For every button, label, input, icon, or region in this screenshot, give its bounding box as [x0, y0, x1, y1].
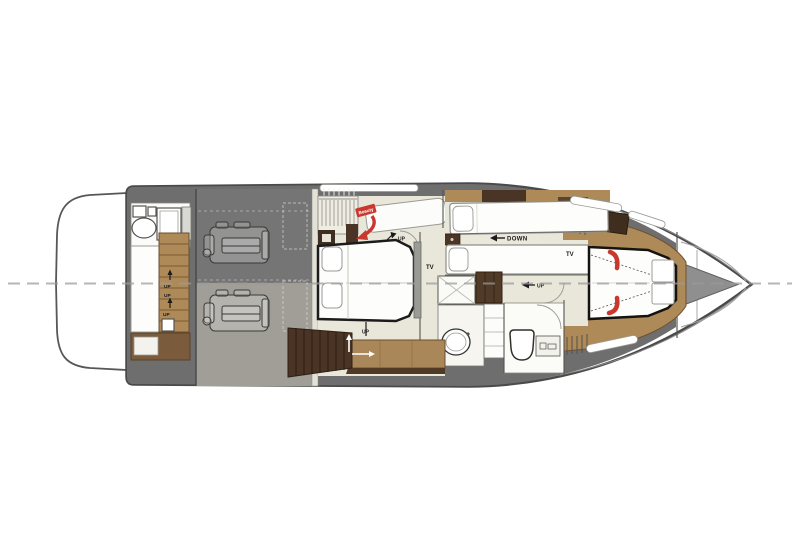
pillow — [322, 283, 342, 308]
deck-hatch — [320, 185, 418, 192]
up-label: UP — [362, 330, 370, 336]
pillow — [453, 206, 473, 231]
swim-platform — [56, 193, 127, 370]
engine-starboard — [203, 290, 269, 331]
yacht-lower-deck-plan: Beauty — [0, 0, 800, 533]
floor-plan-canvas: Beauty — [0, 0, 800, 533]
up-label: UP — [398, 237, 406, 243]
cabinet — [133, 206, 146, 217]
mattress-foot-section — [652, 283, 674, 304]
up-label: UP — [163, 312, 170, 318]
forward-bathroom — [504, 300, 564, 375]
guest-trim-dark — [482, 190, 526, 202]
aft-berth — [131, 246, 159, 332]
master-bed — [318, 240, 421, 321]
up-label: UP — [164, 293, 171, 299]
master-ensuite — [438, 272, 504, 366]
pillow — [322, 247, 342, 271]
forward-toilet — [510, 330, 534, 360]
footboard-panel — [414, 242, 421, 318]
guest-bed-lower — [443, 245, 600, 275]
hatch — [134, 337, 158, 355]
mattress-foot-section — [652, 260, 674, 282]
tv-label: TV — [426, 265, 434, 271]
linen-cabinet — [484, 304, 504, 358]
deck-tick-marks — [324, 188, 354, 196]
cabinet — [148, 207, 156, 216]
bench-front — [346, 368, 445, 374]
down-label: DOWN — [507, 237, 528, 243]
up-label: UP — [164, 284, 171, 290]
aft-cabin — [131, 203, 191, 360]
step-stool — [162, 319, 174, 331]
pillow — [449, 248, 468, 271]
engine-port — [203, 222, 269, 263]
ensuite-wardrobe — [476, 272, 502, 303]
trim-dark — [346, 224, 358, 244]
toilet — [132, 218, 156, 238]
tv-label: TV — [566, 252, 574, 258]
faucet — [466, 332, 469, 335]
